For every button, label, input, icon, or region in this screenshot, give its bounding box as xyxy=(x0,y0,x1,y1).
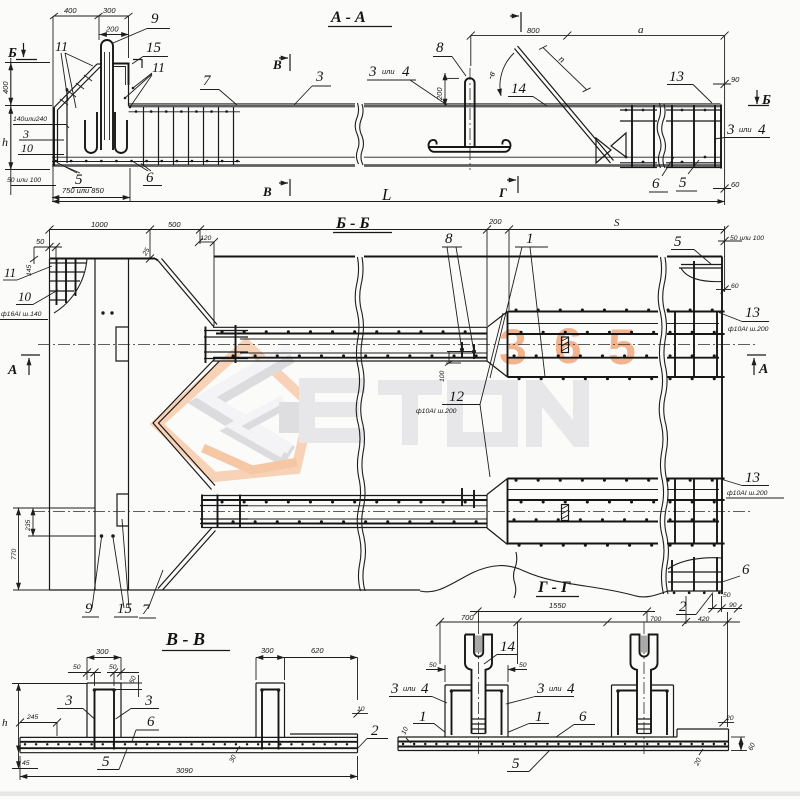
svg-text:3: 3 xyxy=(726,122,735,138)
svg-text:3090: 3090 xyxy=(176,766,194,775)
svg-text:или: или xyxy=(739,125,752,134)
svg-text:60: 60 xyxy=(731,283,739,290)
svg-text:3: 3 xyxy=(22,127,29,141)
svg-text:245: 245 xyxy=(26,714,39,721)
svg-text:50: 50 xyxy=(723,592,731,599)
svg-text:13: 13 xyxy=(745,470,760,486)
svg-text:или: или xyxy=(403,684,416,693)
svg-text:5: 5 xyxy=(512,756,520,772)
svg-text:50 или 100: 50 или 100 xyxy=(7,177,41,184)
svg-text:9: 9 xyxy=(151,11,159,27)
svg-text:3: 3 xyxy=(64,693,73,709)
svg-text:500: 500 xyxy=(168,220,181,229)
svg-text:11: 11 xyxy=(55,40,68,55)
svg-text:или: или xyxy=(382,67,395,76)
svg-text:11: 11 xyxy=(4,265,16,280)
svg-text:В - В: В - В xyxy=(165,629,205,649)
svg-text:4: 4 xyxy=(567,681,575,697)
svg-text:5: 5 xyxy=(674,234,682,250)
svg-text:6: 6 xyxy=(652,176,660,192)
svg-text:А: А xyxy=(7,363,17,378)
svg-text:50: 50 xyxy=(429,662,437,669)
svg-text:620: 620 xyxy=(311,646,324,655)
svg-text:1: 1 xyxy=(419,709,427,725)
svg-text:90: 90 xyxy=(731,75,740,84)
svg-text:300: 300 xyxy=(103,6,116,15)
svg-text:Б: Б xyxy=(7,46,17,61)
svg-text:S: S xyxy=(614,217,620,229)
svg-text:50: 50 xyxy=(109,664,117,671)
svg-text:60: 60 xyxy=(731,180,740,189)
svg-text:5: 5 xyxy=(75,172,83,188)
svg-text:5: 5 xyxy=(608,319,636,375)
svg-text:13: 13 xyxy=(745,305,760,321)
svg-text:700: 700 xyxy=(461,613,474,622)
svg-text:45: 45 xyxy=(22,760,30,767)
svg-text:10: 10 xyxy=(21,141,33,155)
svg-text:3: 3 xyxy=(536,681,545,697)
svg-text:3: 3 xyxy=(390,681,399,697)
svg-text:12: 12 xyxy=(449,389,465,405)
svg-text:140или240: 140или240 xyxy=(13,116,47,123)
svg-text:L: L xyxy=(381,185,391,204)
svg-text:15: 15 xyxy=(117,601,133,617)
svg-text:ф16АI ш.140: ф16АI ш.140 xyxy=(1,311,42,318)
svg-text:8: 8 xyxy=(436,40,444,56)
svg-text:100: 100 xyxy=(439,370,446,382)
svg-text:4: 4 xyxy=(402,64,410,80)
svg-text:200: 200 xyxy=(105,25,119,34)
svg-text:300: 300 xyxy=(261,646,274,655)
svg-text:8: 8 xyxy=(445,231,453,247)
svg-text:120: 120 xyxy=(200,235,212,242)
svg-text:400: 400 xyxy=(64,6,77,15)
svg-text:а: а xyxy=(638,24,644,36)
svg-text:400: 400 xyxy=(1,81,10,94)
svg-text:10: 10 xyxy=(18,289,32,304)
svg-text:3: 3 xyxy=(499,319,527,375)
svg-text:50: 50 xyxy=(36,237,45,246)
svg-text:Г: Г xyxy=(498,185,507,200)
svg-text:11: 11 xyxy=(152,61,165,76)
svg-text:800: 800 xyxy=(527,26,540,35)
svg-text:h: h xyxy=(2,135,8,149)
svg-text:90: 90 xyxy=(729,602,737,609)
svg-text:14: 14 xyxy=(511,81,527,97)
svg-text:ф10АI ш.200: ф10АI ш.200 xyxy=(416,408,457,415)
svg-text:770: 770 xyxy=(11,548,18,560)
svg-text:1000: 1000 xyxy=(91,220,109,229)
svg-text:3: 3 xyxy=(368,64,377,80)
svg-text:5: 5 xyxy=(102,754,110,770)
svg-text:ф10АI ш.200: ф10АI ш.200 xyxy=(728,326,769,333)
svg-text:h: h xyxy=(2,717,8,729)
svg-text:4: 4 xyxy=(758,122,766,138)
svg-text:4: 4 xyxy=(421,681,429,697)
svg-text:В: В xyxy=(272,57,282,72)
svg-text:или: или xyxy=(549,684,562,693)
svg-text:1550: 1550 xyxy=(549,601,567,610)
svg-text:А - А: А - А xyxy=(330,9,366,26)
svg-text:14: 14 xyxy=(500,639,516,655)
svg-text:1: 1 xyxy=(535,709,543,725)
svg-text:Г - Г: Г - Г xyxy=(537,579,571,596)
svg-text:ф10АI ш.200: ф10АI ш.200 xyxy=(727,490,768,497)
svg-text:200: 200 xyxy=(435,87,444,101)
svg-text:6: 6 xyxy=(146,170,154,186)
svg-text:5: 5 xyxy=(679,175,687,191)
svg-text:20: 20 xyxy=(725,715,734,722)
svg-text:50: 50 xyxy=(519,662,527,669)
svg-text:9: 9 xyxy=(85,601,93,617)
svg-text:2: 2 xyxy=(371,723,379,739)
svg-text:6: 6 xyxy=(147,714,155,730)
svg-text:13: 13 xyxy=(669,69,684,85)
svg-text:А: А xyxy=(758,362,768,377)
svg-text:300: 300 xyxy=(96,647,109,656)
svg-text:15: 15 xyxy=(146,40,162,56)
svg-text:В: В xyxy=(262,184,272,199)
svg-text:3: 3 xyxy=(144,693,153,709)
svg-text:50: 50 xyxy=(73,664,81,671)
svg-text:3: 3 xyxy=(315,69,324,85)
svg-text:6: 6 xyxy=(742,562,750,578)
svg-text:1: 1 xyxy=(526,231,534,247)
svg-text:200: 200 xyxy=(488,217,502,226)
svg-text:235: 235 xyxy=(25,519,32,532)
svg-text:6: 6 xyxy=(579,709,587,725)
